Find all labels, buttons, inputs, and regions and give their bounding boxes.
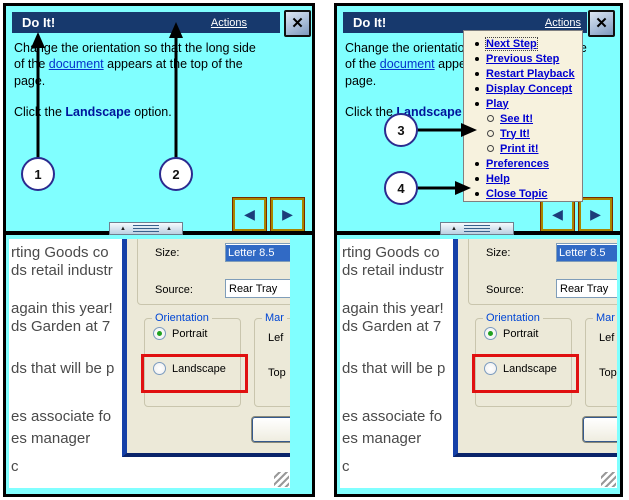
radio-portrait[interactable]: Portrait [484, 327, 538, 340]
splitter-grip-lines [133, 225, 159, 232]
document-text-line: ds Garden at 7 [11, 318, 110, 335]
margin-left-label: Lef [599, 332, 614, 344]
bullet-icon [475, 87, 479, 91]
margins-legend: Mar [262, 312, 287, 324]
size-select[interactable]: Letter 8.5 [556, 243, 617, 262]
close-button[interactable]: ✕ [284, 10, 311, 37]
document-text-line: c [342, 458, 350, 475]
menu-item-label: Restart Playback [486, 68, 575, 80]
actions-dropdown-menu: Next StepPrevious StepRestart PlaybackDi… [463, 30, 583, 202]
bullet-icon [475, 57, 479, 61]
arrow-left-icon: ◀ [244, 206, 255, 223]
menu-item-try-it[interactable]: Try It! [464, 126, 582, 141]
document-text-line: rting Goods co [342, 244, 440, 261]
orientation-legend: Orientation [483, 312, 543, 324]
source-label: Source: [155, 284, 193, 296]
orientation-group: Orientation Portrait Landscape [144, 318, 241, 407]
bullet-icon [475, 162, 479, 166]
hollow-bullet-icon [487, 115, 494, 122]
application-area: rting Goods cods retail industragain thi… [337, 235, 620, 494]
hollow-bullet-icon [487, 145, 494, 152]
size-label: Size: [155, 247, 179, 259]
source-label: Source: [486, 284, 524, 296]
menu-item-help[interactable]: Help [464, 171, 582, 186]
topic-nav: ◀ ▶ [233, 198, 304, 231]
splitter-up-icon: ▲ [451, 226, 457, 232]
close-button[interactable]: ✕ [588, 10, 615, 37]
source-value: Rear Tray [226, 283, 277, 295]
menu-item-restart-playback[interactable]: Restart Playback [464, 66, 582, 81]
radio-selected-icon [153, 327, 166, 340]
document-text-line: es manager [11, 430, 90, 447]
size-value: Letter 8.5 [557, 245, 617, 261]
window-title: Do It! [22, 15, 55, 30]
margins-group: Mar Lef Top [585, 318, 617, 407]
window-title: Do It! [353, 15, 386, 30]
margins-legend: Mar [593, 312, 617, 324]
splitter-up-icon: ▲ [166, 226, 172, 232]
arrow-right-icon: ▶ [282, 206, 293, 223]
document-text-line: c [11, 458, 19, 475]
hollow-bullet-icon [487, 130, 494, 137]
document-link[interactable]: document [380, 57, 435, 71]
pane-splitter-handle[interactable]: ▲ ▲ [109, 222, 183, 235]
document-text-line: ds that will be p [342, 360, 445, 377]
margin-top-label: Top [599, 367, 617, 379]
orientation-legend: Orientation [152, 312, 212, 324]
splitter-up-icon: ▲ [497, 226, 503, 232]
bullet-icon [475, 72, 479, 76]
menu-item-next-step[interactable]: Next Step [464, 36, 582, 51]
menu-item-close-topic[interactable]: Close Topic [464, 186, 582, 201]
bullet-icon [475, 102, 479, 106]
callout-number-4: 4 [397, 181, 405, 196]
document-text-line: es manager [342, 430, 421, 447]
pane-splitter-handle[interactable]: ▲ ▲ [440, 222, 514, 235]
menu-item-label: Help [486, 173, 510, 185]
document-text-line: ds that will be p [11, 360, 114, 377]
menu-item-label: Previous Step [486, 53, 559, 65]
callout-circle-4 [385, 172, 417, 204]
document-link[interactable]: document [49, 57, 104, 71]
callout-number-1: 1 [34, 167, 41, 182]
document-text-line: es associate fo [342, 408, 442, 425]
ok-button[interactable] [252, 417, 290, 442]
size-value: Letter 8.5 [226, 245, 290, 261]
document-text-line: rting Goods co [11, 244, 109, 261]
radio-selected-icon [484, 327, 497, 340]
menu-item-preferences[interactable]: Preferences [464, 156, 582, 171]
previous-topic-button[interactable]: ◀ [541, 198, 574, 231]
actions-menu-list: Next StepPrevious StepRestart PlaybackDi… [464, 36, 582, 201]
arrow-left-icon: ◀ [552, 206, 563, 223]
landscape-keyword: Landscape [65, 105, 130, 119]
help-panel: Do It! Actions ✕ Change the orientation … [337, 6, 620, 231]
splitter-grip-lines [464, 225, 490, 232]
document-text-line: es associate fo [11, 408, 111, 425]
callout-circle-2 [160, 158, 192, 190]
document-text-line: again this year! [11, 300, 113, 317]
arrow-right-icon: ▶ [590, 206, 601, 223]
previous-topic-button[interactable]: ◀ [233, 198, 266, 231]
menu-item-label: See It! [500, 113, 533, 125]
menu-item-display-concept[interactable]: Display Concept [464, 81, 582, 96]
bullet-icon [475, 192, 479, 196]
help-panel: Do It! Actions ✕ Change the orientation … [6, 6, 312, 231]
actions-menu-link[interactable]: Actions [545, 17, 581, 29]
document-text-line: ds retail industr [342, 262, 444, 279]
radio-portrait[interactable]: Portrait [153, 327, 207, 340]
bullet-icon [475, 42, 479, 46]
help-window-left: Do It! Actions ✕ Change the orientation … [3, 3, 315, 497]
instruction-segment: Click the [14, 105, 65, 119]
application-area: rting Goods cods retail industragain thi… [6, 235, 312, 494]
document-text-line: ds retail industr [11, 262, 113, 279]
page-setup-dialog: Size: Letter 8.5 Source: Rear Tray Orien… [122, 239, 290, 457]
source-select[interactable]: Rear Tray [556, 279, 617, 298]
margin-left-label: Lef [268, 332, 283, 344]
orientation-group: Orientation Portrait Landscape [475, 318, 572, 407]
menu-item-label: Play [486, 98, 509, 110]
actions-menu-link[interactable]: Actions [211, 17, 247, 29]
resize-grip-icon[interactable] [601, 472, 616, 487]
next-topic-button[interactable]: ▶ [271, 198, 304, 231]
callout-number-2: 2 [172, 167, 179, 182]
menu-item-label: Close Topic [486, 188, 548, 200]
close-icon: ✕ [291, 16, 304, 31]
menu-item-play[interactable]: Play [464, 96, 582, 111]
landscape-highlight-box [141, 354, 248, 393]
close-icon: ✕ [595, 16, 608, 31]
titlebar[interactable]: Do It! Actions [12, 12, 280, 33]
menu-item-previous-step[interactable]: Previous Step [464, 51, 582, 66]
menu-item-label: Preferences [486, 158, 549, 170]
landscape-keyword: Landscape [396, 105, 461, 119]
menu-item-see-it[interactable]: See It! [464, 111, 582, 126]
menu-item-label: Display Concept [486, 83, 572, 95]
application-view: rting Goods cods retail industragain thi… [340, 239, 617, 488]
callout-circle-1 [22, 158, 54, 190]
margin-top-label: Top [268, 367, 286, 379]
source-value: Rear Tray [557, 283, 608, 295]
ok-button[interactable] [583, 417, 617, 442]
size-select[interactable]: Letter 8.5 [225, 243, 290, 262]
margins-group: Mar Lef Top [254, 318, 290, 407]
instruction-segment: option. [131, 105, 172, 119]
menu-item-label: Try It! [500, 128, 530, 140]
source-select[interactable]: Rear Tray [225, 279, 290, 298]
instruction-segment: Click the [345, 105, 396, 119]
instruction-text: Change the orientation so that the long … [14, 40, 264, 120]
menu-item-label: Next Step [486, 38, 537, 50]
next-topic-button[interactable]: ▶ [579, 198, 612, 231]
menu-item-label: Print it! [500, 143, 539, 155]
application-view: rting Goods cods retail industragain thi… [9, 239, 290, 488]
document-text-line: ds Garden at 7 [342, 318, 441, 335]
bullet-icon [475, 177, 479, 181]
size-label: Size: [486, 247, 510, 259]
callout-number-3: 3 [397, 123, 404, 138]
help-window-right: Do It! Actions ✕ Change the orientation … [334, 3, 623, 497]
landscape-highlight-box [472, 354, 579, 393]
document-text-line: again this year! [342, 300, 444, 317]
resize-grip-icon[interactable] [274, 472, 289, 487]
page-setup-dialog: Size: Letter 8.5 Source: Rear Tray Orien… [453, 239, 617, 457]
splitter-up-icon: ▲ [120, 226, 126, 232]
topic-nav: ◀ ▶ [541, 198, 612, 231]
menu-item-print-it[interactable]: Print it! [464, 141, 582, 156]
